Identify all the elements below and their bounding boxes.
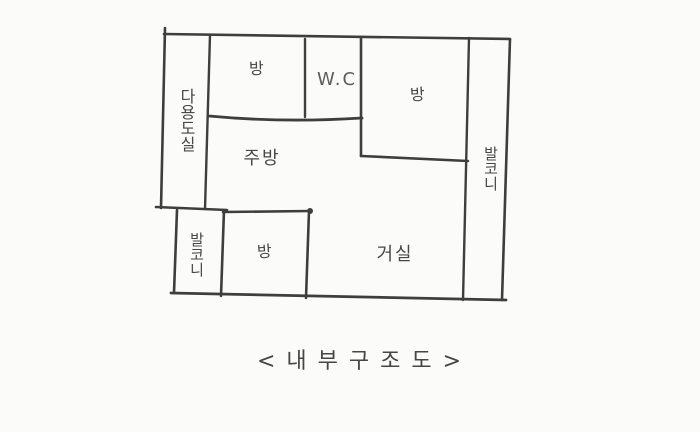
wall-kitchen-top	[209, 116, 362, 120]
label-water-closet: W.C	[317, 71, 357, 89]
wall-outer-top	[164, 34, 510, 39]
label-room-top-right: 방	[410, 87, 427, 104]
label-balcony-lower-left: 발코니	[189, 226, 204, 282]
wall-balcony-right-inner	[463, 38, 469, 300]
wall-room-bottom-right	[306, 211, 309, 298]
label-utility-room: 다용도실	[178, 82, 194, 158]
wall-lower-balcony-left	[174, 210, 177, 293]
wall-room2-bottom	[361, 156, 468, 161]
wall-lower-balcony-room-divider	[221, 210, 224, 296]
wall-room-bottom-top	[223, 211, 310, 212]
scanned-page: 다용도실 방 W.C 방 발코니 주방 발코니 방 거실 < 내 부 구 조 도…	[0, 0, 700, 432]
label-room-bottom: 방	[257, 243, 274, 260]
diagram-caption: < 내 부 구 조 도 >	[257, 343, 463, 375]
wall-outer-right	[502, 39, 510, 300]
label-room-top-left: 방	[249, 61, 265, 78]
wall-utility-bottom	[156, 207, 227, 210]
label-living-room: 거실	[376, 246, 413, 264]
wall-utility-right	[205, 35, 210, 209]
label-kitchen: 주방	[243, 150, 280, 168]
label-balcony-right: 발코니	[483, 139, 498, 197]
wall-outer-left	[161, 28, 165, 208]
